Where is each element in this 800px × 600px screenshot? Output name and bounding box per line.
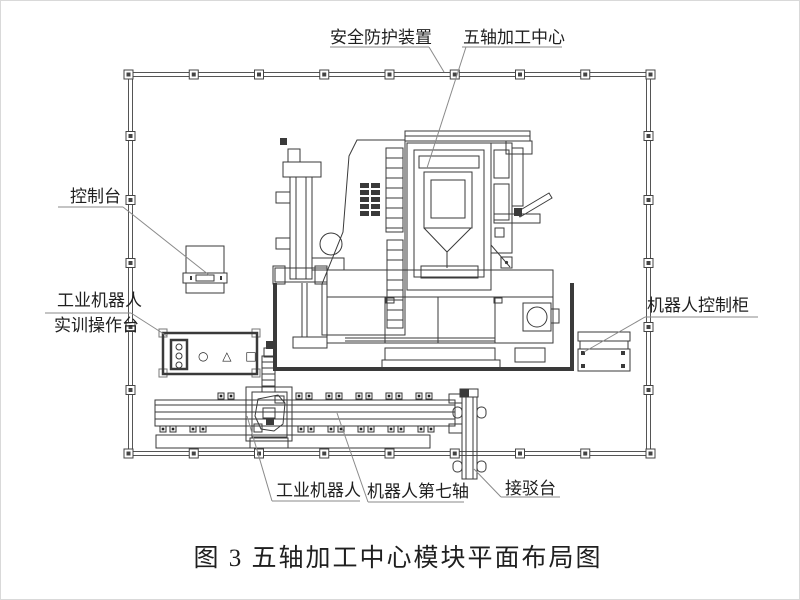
floorplan-drawing: ○ △ □: [0, 0, 800, 600]
open-door-arm: [517, 193, 552, 217]
figure-caption: 图 3 五轴加工中心模块平面布局图: [193, 544, 602, 572]
label-robot-cabinet: 机器人控制柜: [647, 296, 749, 315]
louver-strip-lower: [387, 250, 403, 320]
robot-training-console: ○ △ □: [159, 329, 262, 377]
robot-seventh-axis-rail: [155, 393, 462, 448]
label-safety-guard: 安全防护装置: [330, 28, 432, 47]
label-console: 控制台: [70, 187, 121, 206]
label-docking-table: 接驳台: [505, 479, 556, 498]
louver-strip-upper: [386, 158, 403, 228]
console-keypad: [196, 275, 214, 281]
label-seventh-axis: 机器人第七轴: [367, 482, 469, 501]
leader-lines: [45, 47, 758, 502]
label-training-console-line2: 实训操作台: [54, 316, 139, 335]
five-axis-machining-center: [273, 131, 574, 371]
rotary-table: [527, 307, 547, 327]
panel-symbols: ○ △ □: [198, 349, 262, 363]
console-unit: [183, 246, 227, 293]
machine-guard-channel: [273, 283, 574, 371]
label-training-console-line1: 工业机器人: [57, 291, 142, 310]
vent-block: [360, 183, 380, 216]
label-industrial-robot: 工业机器人: [276, 481, 361, 500]
loader-arm-assembly: [273, 138, 344, 348]
machine-base: [327, 270, 559, 369]
label-machining-center: 五轴加工中心: [463, 28, 565, 47]
figure-page: ○ △ □: [0, 0, 800, 600]
